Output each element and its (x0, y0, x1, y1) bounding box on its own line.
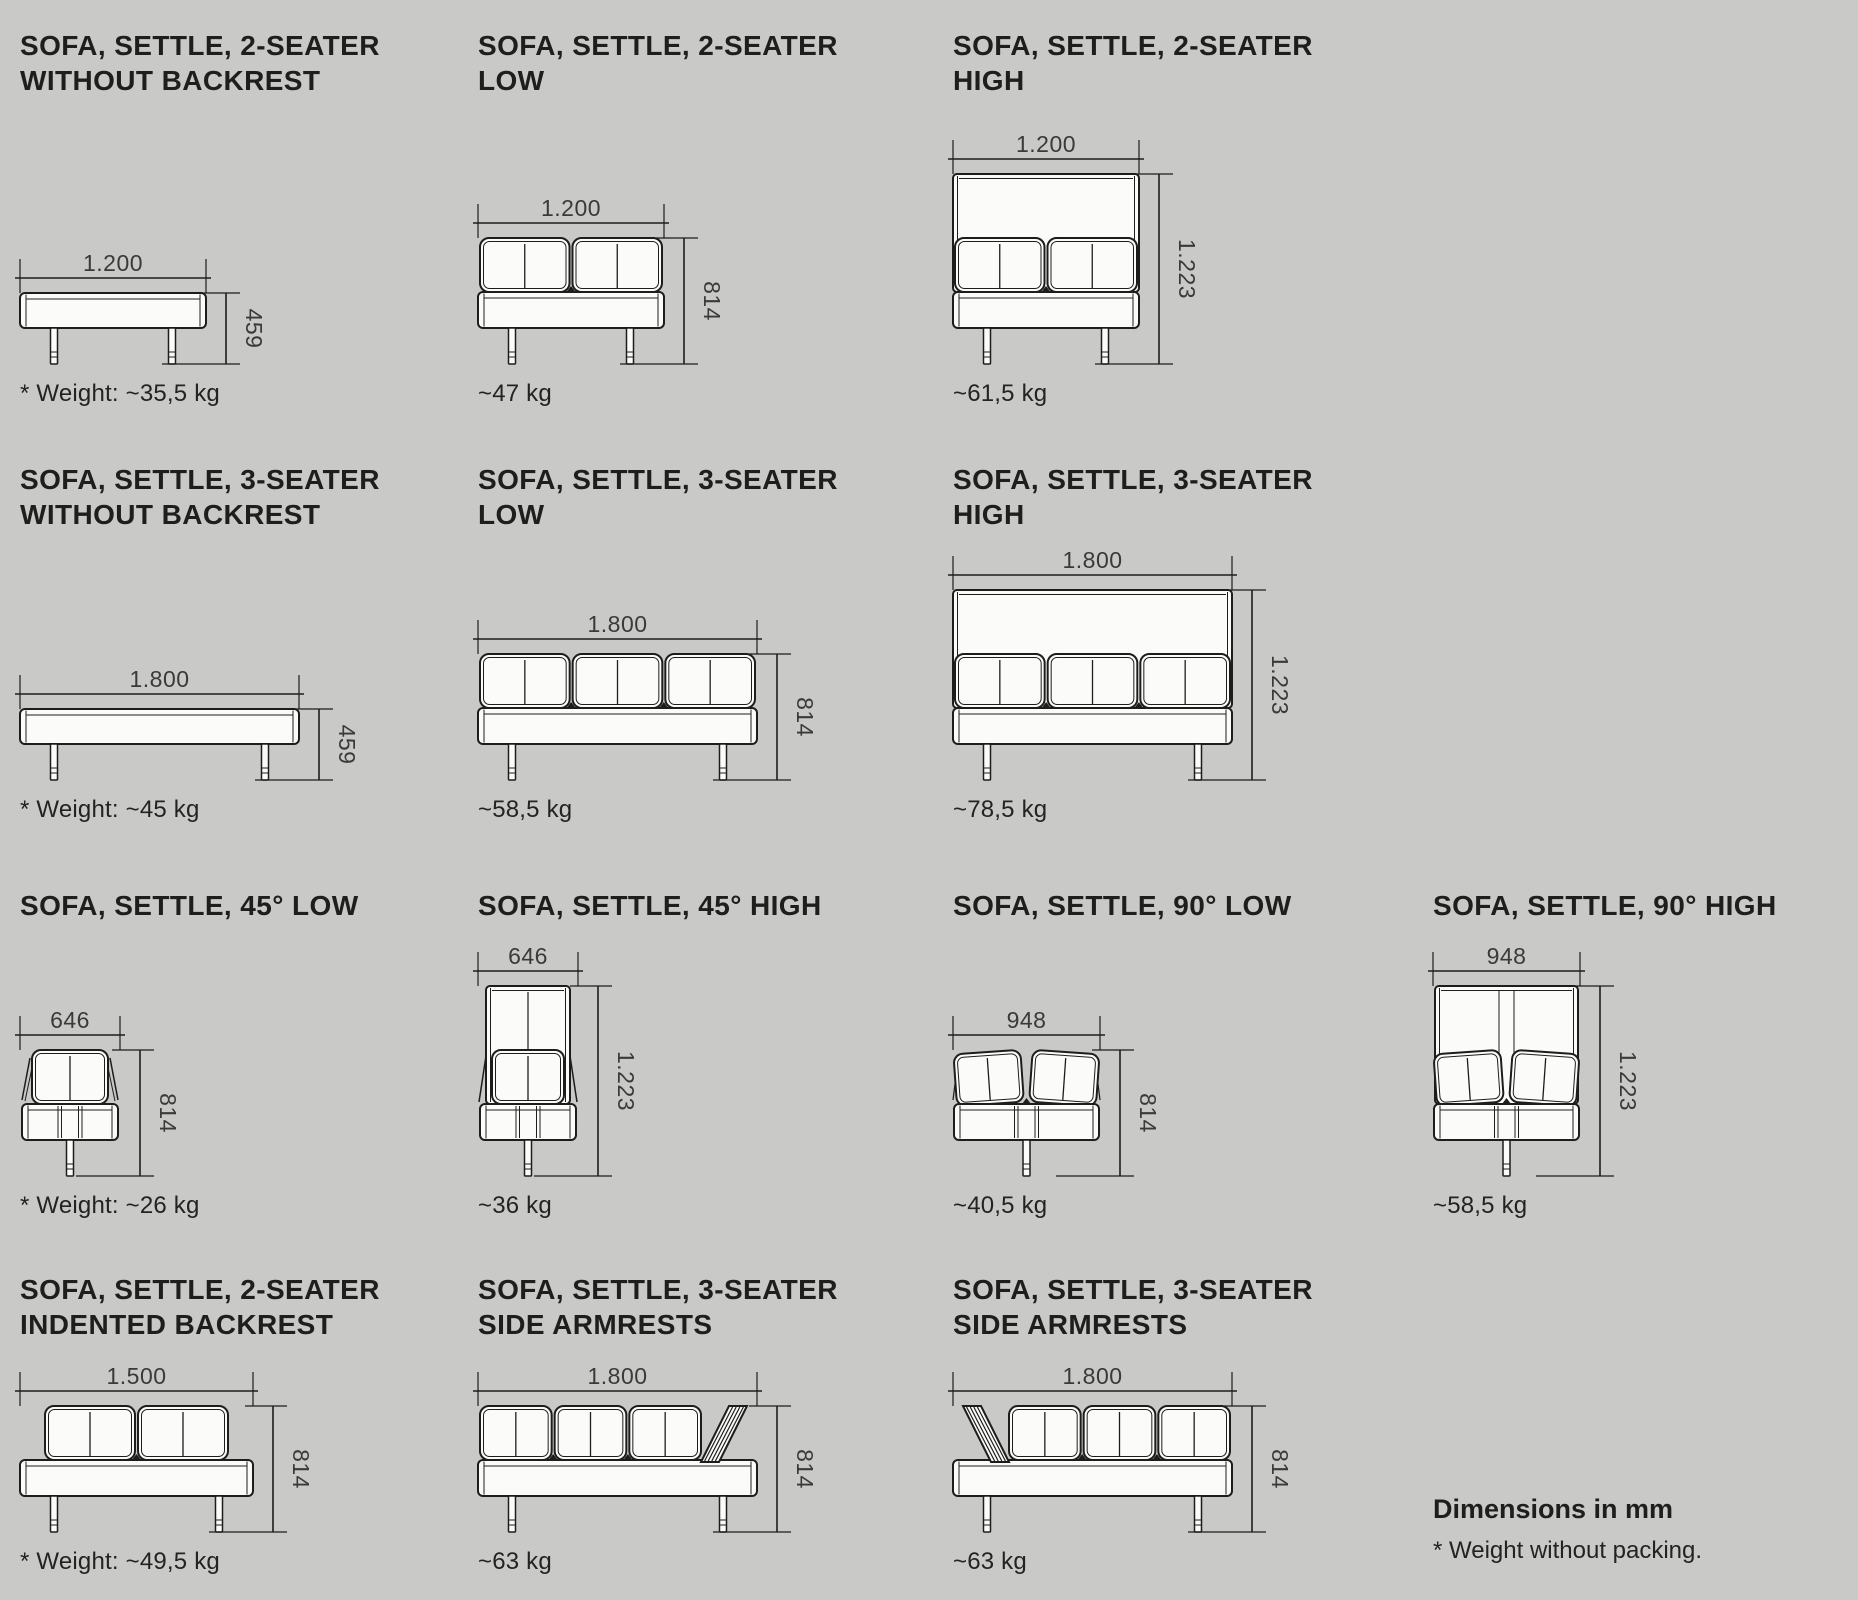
dimension-drawing: 646814 (20, 966, 460, 1180)
spec-cell-3-seater-low: SOFA, SETTLE, 3-SEATERLOW 1.800814 ~58,5… (478, 462, 936, 824)
weight-label: * Weight: ~45 kg (20, 796, 460, 824)
product-title: SOFA, SETTLE, 90° HIGH (1433, 888, 1853, 936)
product-title-line1: SOFA, SETTLE, 2-SEATER (953, 28, 1415, 63)
dimension-drawing: 6461.223 (478, 936, 936, 1180)
product-title-line1: SOFA, SETTLE, 3-SEATER (20, 462, 460, 497)
product-title: SOFA, SETTLE, 3-SEATERSIDE ARMRESTS (478, 1272, 936, 1350)
width-dimension-label: 646 (50, 1007, 90, 1033)
product-title-line1: SOFA, SETTLE, 45° HIGH (478, 888, 936, 923)
product-title-line1: SOFA, SETTLE, 3-SEATER (478, 462, 936, 497)
spec-cell-2-seater-low: SOFA, SETTLE, 2-SEATERLOW 1.200814 ~47 k… (478, 28, 936, 408)
weight-label: ~58,5 kg (478, 796, 936, 824)
product-title: SOFA, SETTLE, 2-SEATERLOW (478, 28, 936, 106)
width-dimension-label: 1.200 (1016, 131, 1076, 157)
dimension-drawing: 1.2001.223 (953, 106, 1415, 368)
dimension-drawing: 1.800814 (478, 540, 936, 784)
technical-drawing: 1.800814 (953, 1356, 1294, 1536)
weight-label: * Weight: ~49,5 kg (20, 1548, 460, 1576)
dimension-drawing: 948814 (953, 966, 1415, 1180)
product-title-line2: HIGH (953, 63, 1415, 98)
width-dimension-label: 1.200 (541, 195, 601, 221)
dimension-drawing: 1.800814 (953, 1350, 1415, 1536)
dimension-drawing: 1.200459 (20, 106, 460, 368)
weight-label: ~78,5 kg (953, 796, 1415, 824)
product-title-line2: WITHOUT BACKREST (20, 497, 460, 532)
spec-cell-2-seater-without-backrest: SOFA, SETTLE, 2-SEATERWITHOUT BACKREST 1… (20, 28, 460, 408)
product-title-line1: SOFA, SETTLE, 90° LOW (953, 888, 1415, 923)
height-dimension-label: 1.223 (1267, 655, 1293, 715)
width-dimension-label: 646 (508, 943, 548, 969)
weight-label: ~47 kg (478, 380, 936, 408)
spec-cell-3-seater-high: SOFA, SETTLE, 3-SEATERHIGH 1.8001.223 ~7… (953, 462, 1415, 824)
product-title: SOFA, SETTLE, 3-SEATERSIDE ARMRESTS (953, 1272, 1415, 1350)
technical-drawing: 1.800459 (20, 659, 361, 784)
product-title-line1: SOFA, SETTLE, 2-SEATER (20, 28, 460, 63)
product-title: SOFA, SETTLE, 3-SEATERWITHOUT BACKREST (20, 462, 460, 540)
technical-drawing: 6461.223 (478, 936, 640, 1180)
technical-drawing: 948814 (953, 1000, 1162, 1180)
spec-cell-90-low: SOFA, SETTLE, 90° LOW 948814 ~40,5 kg (953, 888, 1415, 1220)
weight-label: * Weight: ~35,5 kg (20, 380, 460, 408)
weight-label: ~63 kg (953, 1548, 1415, 1576)
product-title-line2: LOW (478, 497, 936, 532)
technical-drawing: 1.800814 (478, 1356, 819, 1536)
height-dimension-label: 814 (699, 281, 725, 321)
width-dimension-label: 1.800 (129, 666, 189, 692)
weight-label: ~36 kg (478, 1192, 936, 1220)
spec-cell-45-high: SOFA, SETTLE, 45° HIGH 6461.223 ~36 kg (478, 888, 936, 1220)
spec-cell-2-seater-indented-backrest: SOFA, SETTLE, 2-SEATERINDENTED BACKREST … (20, 1272, 460, 1576)
product-title-line2: INDENTED BACKREST (20, 1307, 460, 1342)
dimension-drawing: 1.800459 (20, 540, 460, 784)
spec-cell-2-seater-high: SOFA, SETTLE, 2-SEATERHIGH 1.2001.223 ~6… (953, 28, 1415, 408)
product-title-line1: SOFA, SETTLE, 90° HIGH (1433, 888, 1853, 923)
spec-cell-90-high: SOFA, SETTLE, 90° HIGH 9481.223 ~58,5 kg (1433, 888, 1853, 1220)
dimension-drawing: 1.800814 (478, 1350, 936, 1536)
product-title: SOFA, SETTLE, 3-SEATERHIGH (953, 462, 1415, 540)
spec-cell-3-seater-side-armrests-right: SOFA, SETTLE, 3-SEATERSIDE ARMRESTS 1.80… (478, 1272, 936, 1576)
product-title-line1: SOFA, SETTLE, 3-SEATER (478, 1272, 936, 1307)
technical-drawing: 9481.223 (1433, 936, 1642, 1180)
width-dimension-label: 948 (1007, 1007, 1047, 1033)
height-dimension-label: 814 (1267, 1449, 1293, 1489)
width-dimension-label: 948 (1487, 943, 1527, 969)
width-dimension-label: 1.800 (1062, 547, 1122, 573)
product-title-line1: SOFA, SETTLE, 3-SEATER (953, 462, 1415, 497)
height-dimension-label: 814 (1135, 1093, 1161, 1133)
dimension-drawing: 1.8001.223 (953, 540, 1415, 784)
weight-note: * Weight without packing. (1433, 1537, 1702, 1565)
height-dimension-label: 459 (241, 309, 267, 349)
dimension-drawing: 9481.223 (1433, 936, 1853, 1180)
product-title-line1: SOFA, SETTLE, 2-SEATER (478, 28, 936, 63)
product-title: SOFA, SETTLE, 3-SEATERLOW (478, 462, 936, 540)
product-title-line2: SIDE ARMRESTS (953, 1307, 1415, 1342)
technical-drawing: 1.200459 (20, 243, 268, 368)
height-dimension-label: 814 (792, 697, 818, 737)
product-title: SOFA, SETTLE, 45° LOW (20, 888, 460, 966)
height-dimension-label: 459 (334, 725, 360, 765)
product-title: SOFA, SETTLE, 2-SEATERHIGH (953, 28, 1415, 106)
product-title-line2: HIGH (953, 497, 1415, 532)
weight-label: ~63 kg (478, 1548, 936, 1576)
product-title-line1: SOFA, SETTLE, 3-SEATER (953, 1272, 1415, 1307)
height-dimension-label: 1.223 (1615, 1051, 1641, 1111)
spec-cell-3-seater-without-backrest: SOFA, SETTLE, 3-SEATERWITHOUT BACKREST 1… (20, 462, 460, 824)
product-title-line1: SOFA, SETTLE, 45° LOW (20, 888, 460, 923)
dimensions-note: Dimensions in mm (1433, 1494, 1702, 1525)
height-dimension-label: 1.223 (1174, 239, 1200, 299)
width-dimension-label: 1.800 (587, 1363, 647, 1389)
product-title-line1: SOFA, SETTLE, 2-SEATER (20, 1272, 460, 1307)
width-dimension-label: 1.200 (83, 250, 143, 276)
technical-drawing: 1.800814 (478, 604, 819, 784)
product-title-line2: SIDE ARMRESTS (478, 1307, 936, 1342)
weight-label: ~61,5 kg (953, 380, 1415, 408)
weight-label: * Weight: ~26 kg (20, 1192, 460, 1220)
dimension-drawing: 1.500814 (20, 1350, 460, 1536)
footnotes: Dimensions in mm * Weight without packin… (1433, 1494, 1702, 1565)
product-title-line2: LOW (478, 63, 936, 98)
technical-drawing: 1.200814 (478, 188, 726, 368)
height-dimension-label: 1.223 (613, 1051, 639, 1111)
technical-drawing: 1.2001.223 (953, 124, 1201, 368)
technical-drawing: 1.8001.223 (953, 540, 1294, 784)
product-title: SOFA, SETTLE, 45° HIGH (478, 888, 936, 936)
weight-label: ~58,5 kg (1433, 1192, 1853, 1220)
product-title: SOFA, SETTLE, 90° LOW (953, 888, 1415, 966)
product-title: SOFA, SETTLE, 2-SEATERWITHOUT BACKREST (20, 28, 460, 106)
height-dimension-label: 814 (792, 1449, 818, 1489)
height-dimension-label: 814 (155, 1093, 181, 1133)
product-title-line2: WITHOUT BACKREST (20, 63, 460, 98)
technical-drawing: 646814 (20, 1000, 182, 1180)
spec-cell-3-seater-side-armrests-left: SOFA, SETTLE, 3-SEATERSIDE ARMRESTS 1.80… (953, 1272, 1415, 1576)
weight-label: ~40,5 kg (953, 1192, 1415, 1220)
spec-cell-45-low: SOFA, SETTLE, 45° LOW 646814 * Weight: ~… (20, 888, 460, 1220)
product-title: SOFA, SETTLE, 2-SEATERINDENTED BACKREST (20, 1272, 460, 1350)
width-dimension-label: 1.800 (1062, 1363, 1122, 1389)
height-dimension-label: 814 (288, 1449, 314, 1489)
width-dimension-label: 1.800 (587, 611, 647, 637)
width-dimension-label: 1.500 (106, 1363, 166, 1389)
dimension-drawing: 1.200814 (478, 106, 936, 368)
technical-drawing: 1.500814 (20, 1356, 315, 1536)
spec-sheet: SOFA, SETTLE, 2-SEATERWITHOUT BACKREST 1… (0, 0, 1858, 1600)
